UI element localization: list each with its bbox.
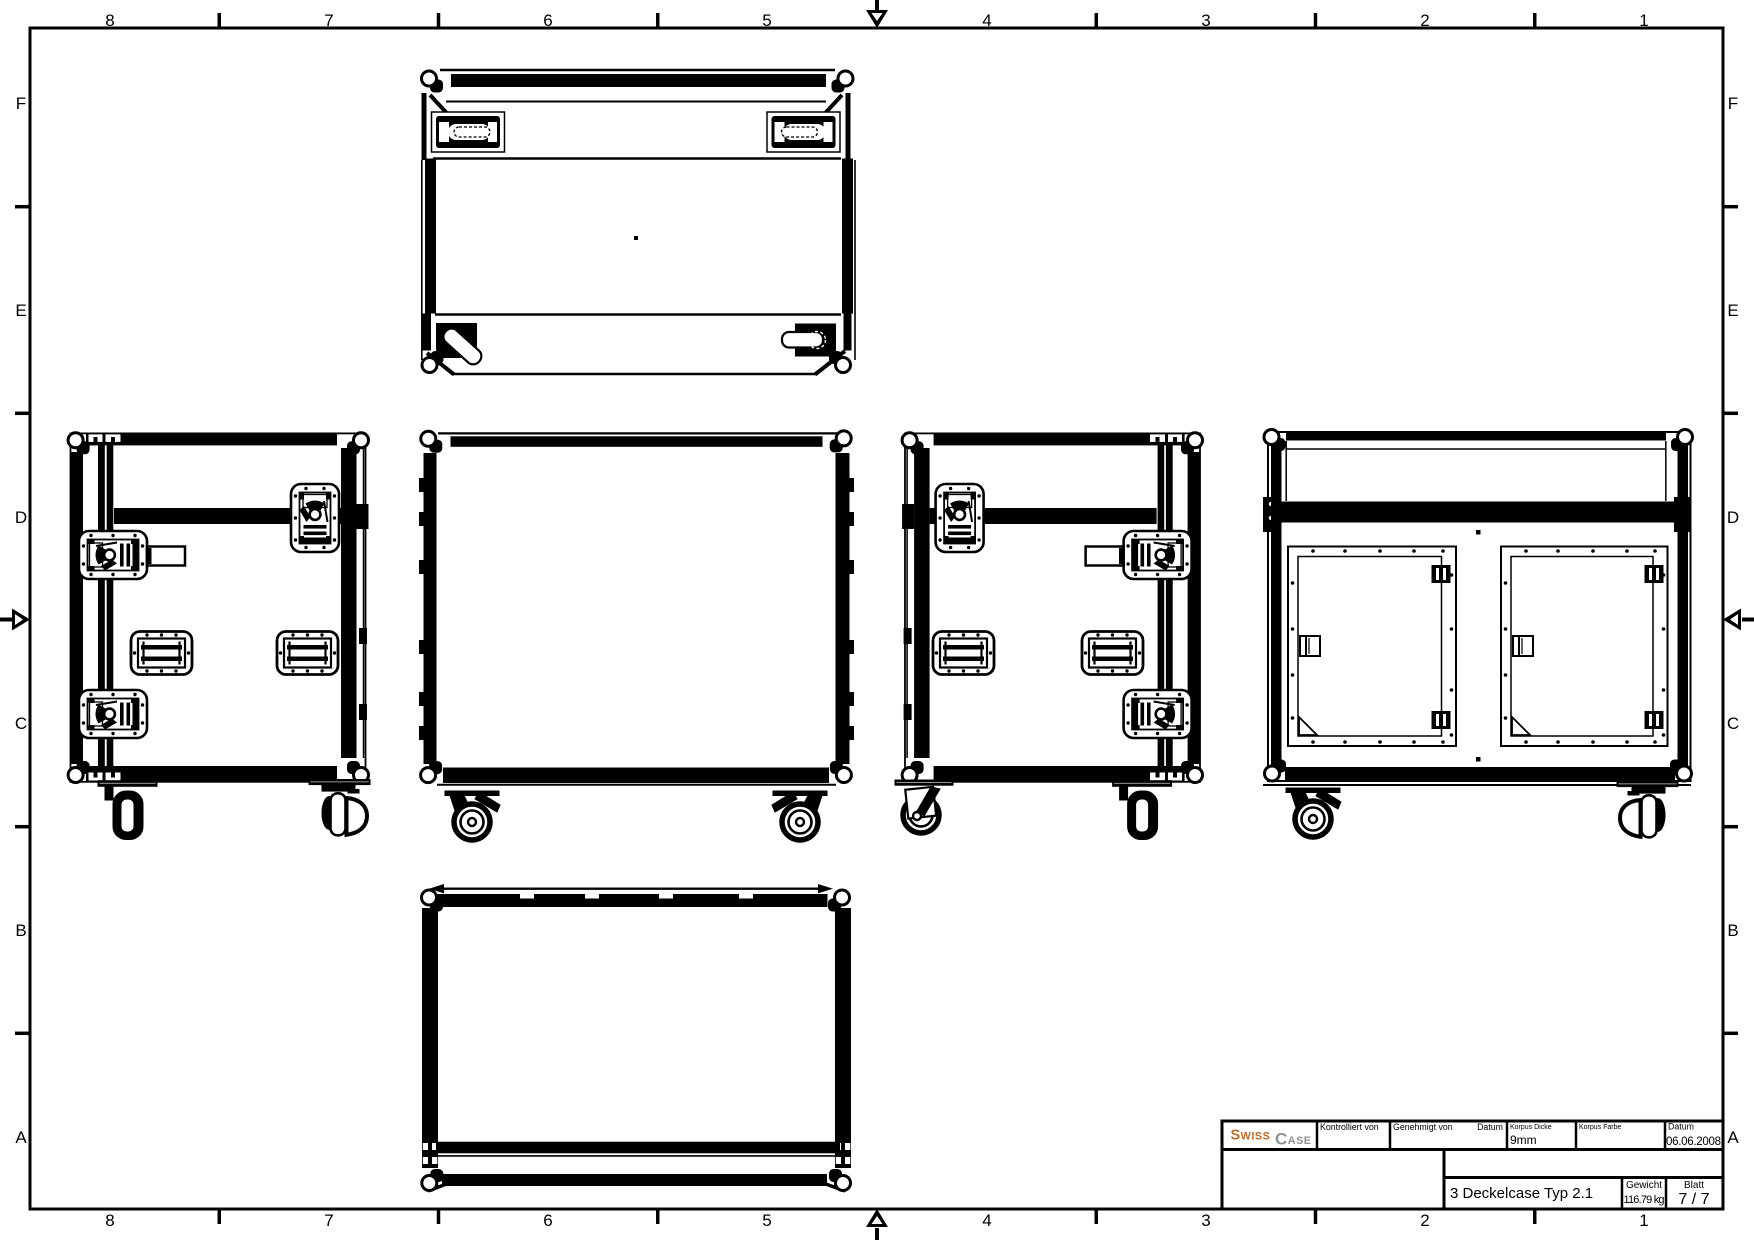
svg-text:Genehmigt von: Genehmigt von bbox=[1393, 1122, 1453, 1132]
svg-text:Korpus Farbe: Korpus Farbe bbox=[1579, 1124, 1622, 1131]
svg-text:5: 5 bbox=[762, 11, 771, 30]
svg-text:F: F bbox=[1728, 94, 1738, 113]
svg-text:1: 1 bbox=[1639, 11, 1648, 30]
svg-text:D: D bbox=[1727, 508, 1739, 527]
svg-text:7: 7 bbox=[324, 11, 333, 30]
svg-text:Gewicht: Gewicht bbox=[1626, 1180, 1662, 1191]
svg-text:7 / 7: 7 / 7 bbox=[1678, 1191, 1709, 1208]
svg-text:C: C bbox=[1727, 714, 1739, 733]
svg-text:Kontrolliert von: Kontrolliert von bbox=[1320, 1122, 1379, 1132]
svg-text:8: 8 bbox=[105, 1211, 114, 1230]
svg-text:7: 7 bbox=[324, 1211, 333, 1230]
svg-text:C: C bbox=[15, 714, 27, 733]
svg-text:4: 4 bbox=[982, 11, 991, 30]
svg-text:Korpus Dicke: Korpus Dicke bbox=[1510, 1124, 1552, 1131]
svg-text:SWISS: SWISS bbox=[1231, 1128, 1271, 1144]
svg-text:5: 5 bbox=[762, 1211, 771, 1230]
svg-text:A: A bbox=[15, 1128, 27, 1147]
svg-text:4: 4 bbox=[982, 1211, 991, 1230]
svg-text:Datum: Datum bbox=[1668, 1122, 1694, 1132]
svg-text:B: B bbox=[1727, 921, 1738, 940]
svg-text:Datum: Datum bbox=[1477, 1122, 1503, 1132]
svg-text:06.06.2008: 06.06.2008 bbox=[1666, 1136, 1721, 1148]
svg-text:1: 1 bbox=[1639, 1211, 1648, 1230]
svg-text:116.79 kg: 116.79 kg bbox=[1624, 1194, 1665, 1206]
svg-text:Blatt: Blatt bbox=[1684, 1180, 1704, 1191]
svg-text:8: 8 bbox=[105, 11, 114, 30]
svg-text:E: E bbox=[1727, 301, 1738, 320]
svg-text:6: 6 bbox=[543, 11, 552, 30]
svg-text:D: D bbox=[15, 508, 27, 527]
svg-text:6: 6 bbox=[543, 1211, 552, 1230]
svg-text:B: B bbox=[15, 921, 26, 940]
svg-text:2: 2 bbox=[1420, 11, 1429, 30]
svg-text:2: 2 bbox=[1420, 1211, 1429, 1230]
svg-text:3: 3 bbox=[1201, 1211, 1210, 1230]
svg-text:3: 3 bbox=[1201, 11, 1210, 30]
svg-text:3 Deckelcase Typ 2.1: 3 Deckelcase Typ 2.1 bbox=[1450, 1185, 1593, 1202]
svg-text:F: F bbox=[16, 94, 26, 113]
svg-text:9mm: 9mm bbox=[1510, 1133, 1537, 1147]
svg-text:E: E bbox=[15, 301, 26, 320]
svg-text:A: A bbox=[1727, 1128, 1739, 1147]
